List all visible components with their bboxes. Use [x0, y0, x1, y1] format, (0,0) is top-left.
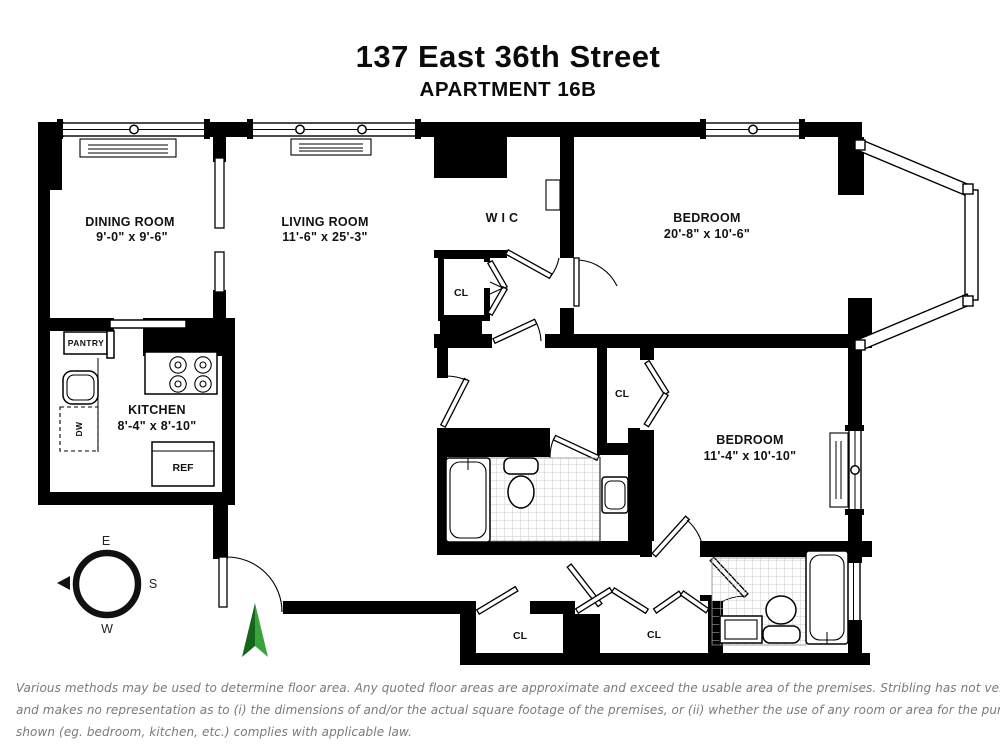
door-swing-arc — [227, 557, 282, 612]
door-leaf — [493, 319, 537, 343]
room-dims-living: 11'-6" x 25'-3" — [282, 230, 368, 244]
bathroom-sink — [720, 616, 762, 643]
door-leaf — [574, 258, 579, 306]
compass-east-label: E — [102, 534, 110, 548]
entry-door-leaf — [219, 557, 227, 607]
radiator — [830, 433, 848, 507]
pocket-door-panel — [215, 252, 224, 292]
bay-window — [855, 140, 978, 350]
floorplan-page: 137 East 36th Street APARTMENT 16B — [0, 0, 1000, 750]
page-subtitle: APARTMENT 16B — [420, 78, 597, 101]
kitchen-sink — [63, 371, 98, 404]
compass: E S W — [57, 534, 157, 636]
page-title: 137 East 36th Street — [356, 39, 661, 74]
room-dims-dining: 9'-0" x 9'-6" — [96, 230, 168, 244]
closet-bifold-leaf — [644, 393, 668, 427]
bathtub — [806, 551, 848, 644]
closet-label: CL — [513, 630, 528, 642]
door-leaf — [553, 435, 599, 460]
room-label-bedroom2: BEDROOM — [716, 433, 783, 447]
pantry-label: PANTRY — [68, 338, 104, 348]
room-label-bedroom1: BEDROOM — [673, 211, 740, 225]
compass-circle — [76, 553, 138, 615]
room-label-wic: W I C — [486, 211, 519, 225]
closet-label: CL — [647, 629, 662, 641]
closet-bifold-leaf — [645, 361, 669, 395]
disclaimer-line-2: and makes no representation as to (i) th… — [16, 703, 1000, 717]
door-leaf — [441, 379, 469, 428]
compass-north-pointer — [57, 576, 70, 590]
wic-shelf — [546, 180, 560, 210]
closet-label: CL — [615, 388, 630, 400]
room-label-dining: DINING ROOM — [85, 215, 174, 229]
room-label-kitchen: KITCHEN — [128, 403, 186, 417]
disclaimer-line-3: shown (eg. bedroom, kitchen, etc.) compl… — [16, 725, 412, 739]
radiator — [291, 139, 371, 155]
room-dims-bedroom2: 11'-4" x 10'-10" — [704, 449, 797, 463]
counter-passthrough — [110, 320, 186, 328]
pocket-door-panel — [215, 158, 224, 228]
closet-label: CL — [454, 287, 469, 299]
room-dims-bedroom1: 20'-8" x 10'-6" — [664, 227, 750, 241]
room-label-living: LIVING ROOM — [281, 215, 368, 229]
bathroom-sink — [602, 477, 628, 513]
bathroom2-fixtures — [712, 551, 848, 645]
dishwasher-label: DW — [74, 421, 84, 437]
window-mullion — [130, 125, 138, 133]
room-dims-kitchen: 8'-4" x 8'-10" — [118, 419, 197, 433]
bathroom1-fixtures — [446, 457, 628, 542]
compass-south-label: S — [149, 577, 157, 591]
compass-west-label: W — [101, 622, 113, 636]
disclaimer-line-1: Various methods may be used to determine… — [16, 681, 1000, 695]
north-arrow — [242, 603, 268, 657]
radiator — [80, 139, 176, 157]
pantry-door — [107, 331, 114, 358]
door-leaf — [506, 250, 552, 279]
refrigerator-label: REF — [173, 462, 195, 474]
bathtub — [446, 458, 490, 542]
